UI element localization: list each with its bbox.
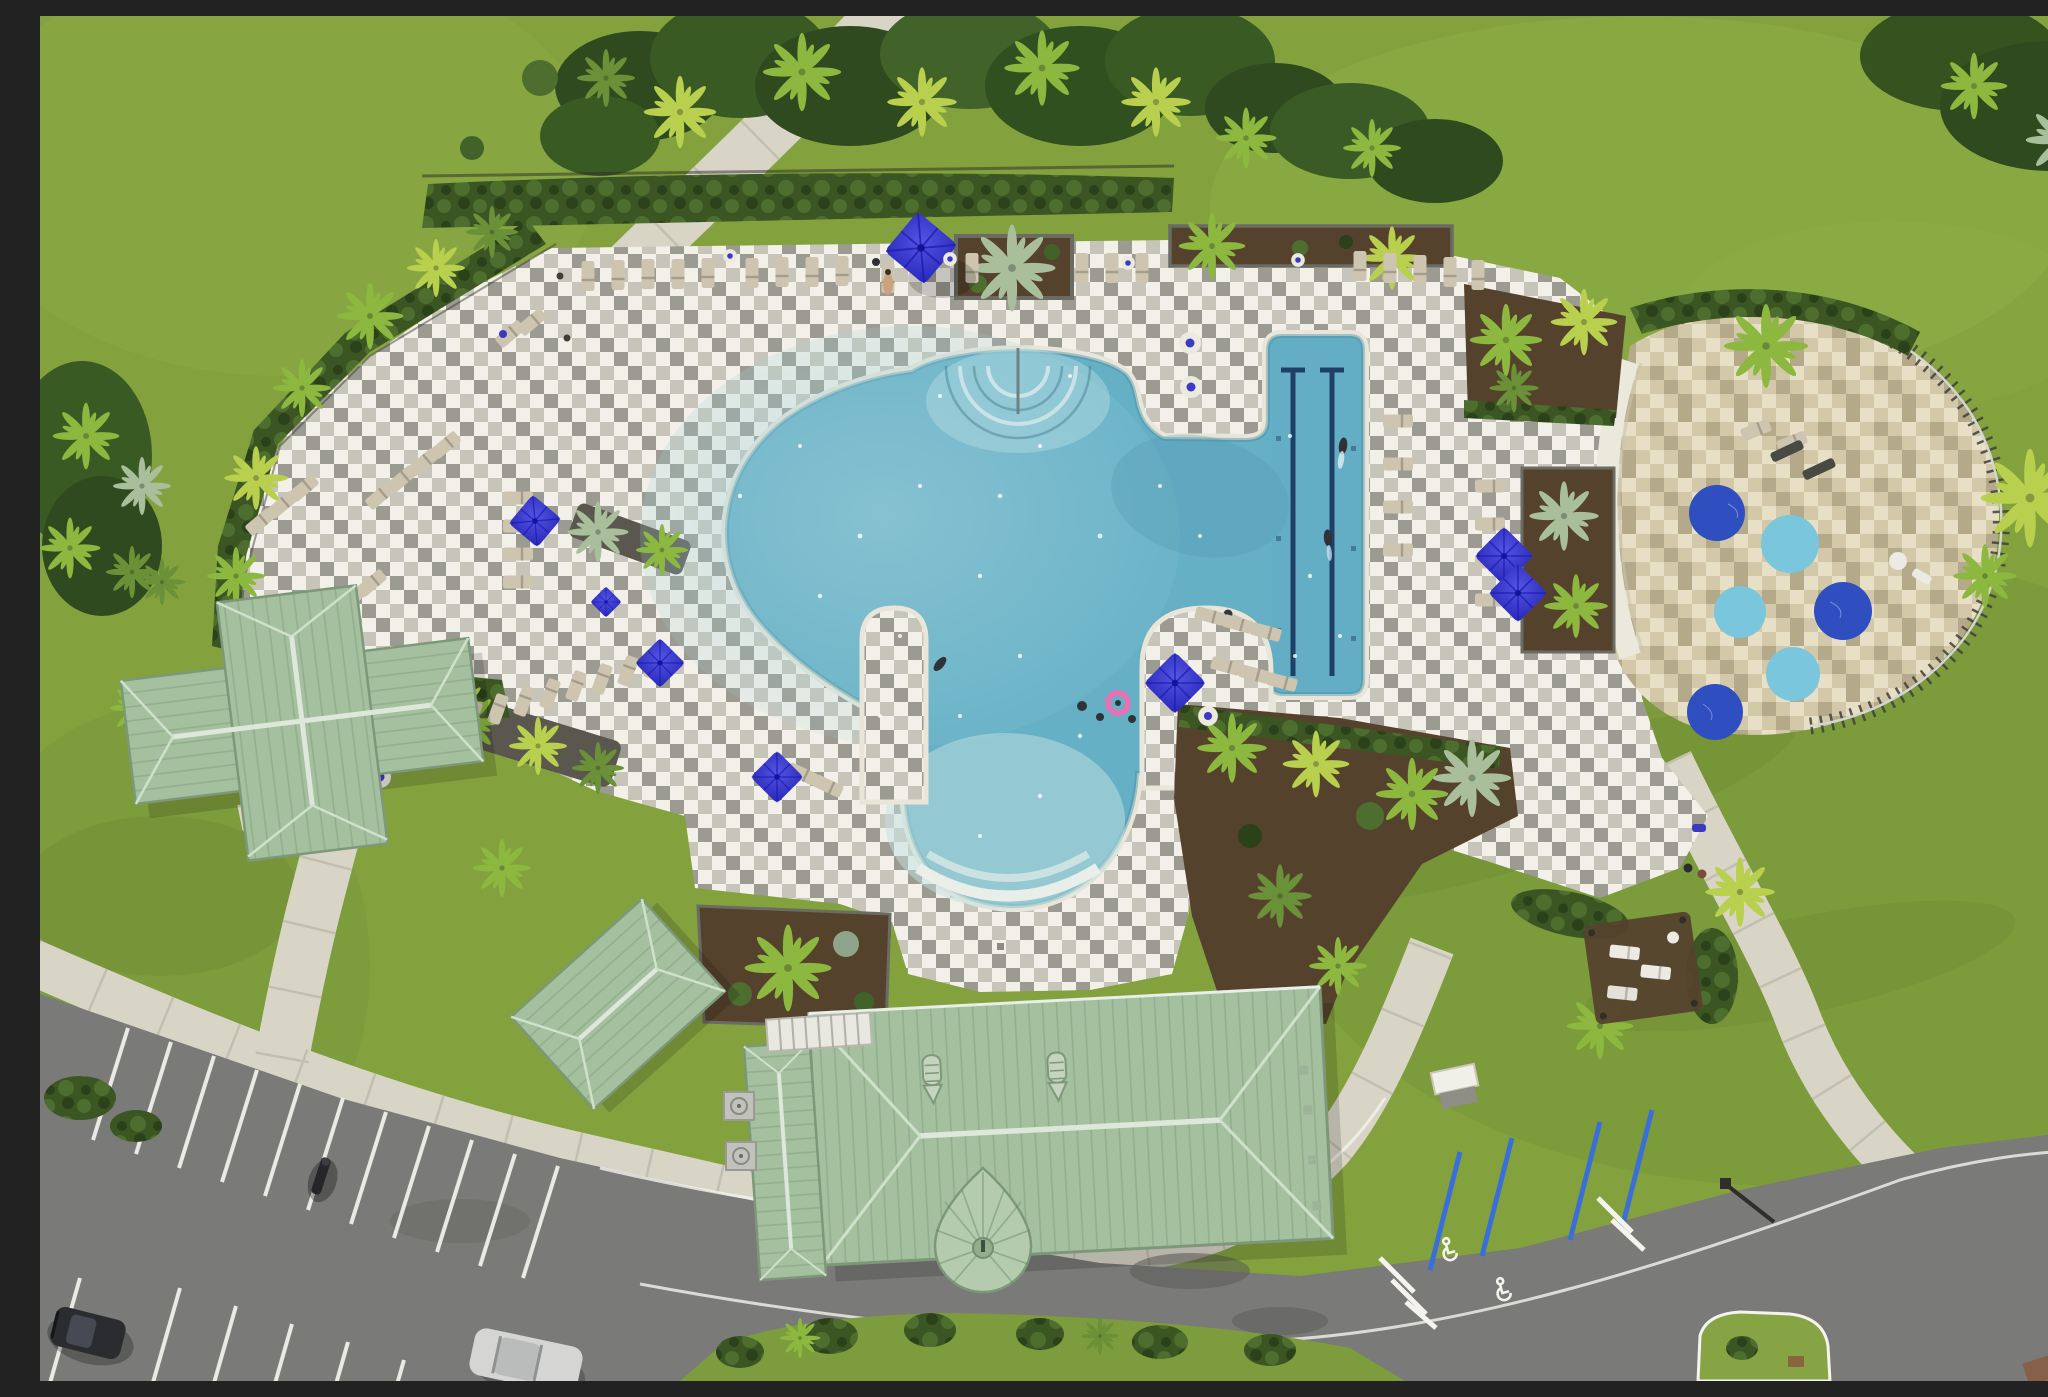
white-table <box>1889 552 1907 570</box>
swimmer <box>1077 701 1087 711</box>
small-tree <box>460 136 484 160</box>
splash-circle-light <box>1714 586 1766 638</box>
palm-tree <box>1953 544 2017 608</box>
palm-tree <box>572 742 624 794</box>
drink-table <box>1121 256 1135 270</box>
brick-paver-patch <box>1788 1356 1804 1367</box>
asphalt-stain <box>390 1199 530 1243</box>
ac-unit <box>724 1092 754 1120</box>
swimmer <box>1096 713 1104 721</box>
swimmer <box>1128 715 1136 723</box>
palm-tree <box>1343 119 1401 177</box>
palm-tree <box>568 502 629 563</box>
cabana-pergola <box>1583 911 1704 1025</box>
palm-tree <box>1216 108 1277 169</box>
splash-circle-light <box>1766 647 1820 701</box>
deck-peninsula-left <box>862 608 926 802</box>
silver-shrub <box>833 931 859 957</box>
person-walking <box>1698 870 1707 879</box>
shrub <box>110 1110 162 1142</box>
blue-bag <box>1692 824 1706 832</box>
bed-northeast <box>1464 284 1626 426</box>
asphalt-stain <box>1232 1307 1328 1335</box>
person-standing <box>872 258 880 266</box>
palm-tree <box>780 1318 821 1359</box>
splash-circle-light <box>1761 515 1819 573</box>
splash-circle-dark <box>1689 485 1745 541</box>
palm-tree <box>1724 304 1808 388</box>
ac-unit <box>726 1142 756 1170</box>
lap-pool-tint <box>1272 338 1360 692</box>
person-sunbathing <box>883 273 893 295</box>
drink-table <box>1291 253 1305 267</box>
palm-tree <box>139 559 185 605</box>
palm-tree <box>644 76 717 149</box>
side-table <box>1180 376 1202 398</box>
palm-tree <box>577 49 635 107</box>
person-walking <box>1684 864 1693 873</box>
palm-tree <box>1004 30 1079 105</box>
palm-tree <box>636 524 688 576</box>
person-walking <box>499 330 507 338</box>
main-clubhouse-roof <box>724 986 1347 1292</box>
dome-finial <box>981 1240 985 1252</box>
palm-tree <box>887 67 957 137</box>
palm-tree <box>1081 1317 1119 1355</box>
bed-east-mid <box>1522 468 1614 652</box>
palm-tree <box>509 717 567 775</box>
aerial-photo: Aerial drone photograph, straight down, … <box>40 16 2048 1381</box>
palm-tree <box>473 839 531 897</box>
palm-tree <box>763 33 841 111</box>
drink-table <box>723 249 737 263</box>
palm-tree <box>1121 67 1191 137</box>
splash-circle-dark <box>1814 582 1872 640</box>
lattice-pergola <box>766 1012 872 1051</box>
small-tree <box>522 60 558 96</box>
shrub <box>44 1076 116 1120</box>
curb-island <box>1698 1312 1830 1381</box>
drink-table <box>943 252 957 266</box>
side-table <box>1179 332 1201 354</box>
splash-circle-dark <box>1687 684 1743 740</box>
aerial-photo-canvas <box>40 16 2048 1381</box>
side-table <box>1198 706 1218 726</box>
